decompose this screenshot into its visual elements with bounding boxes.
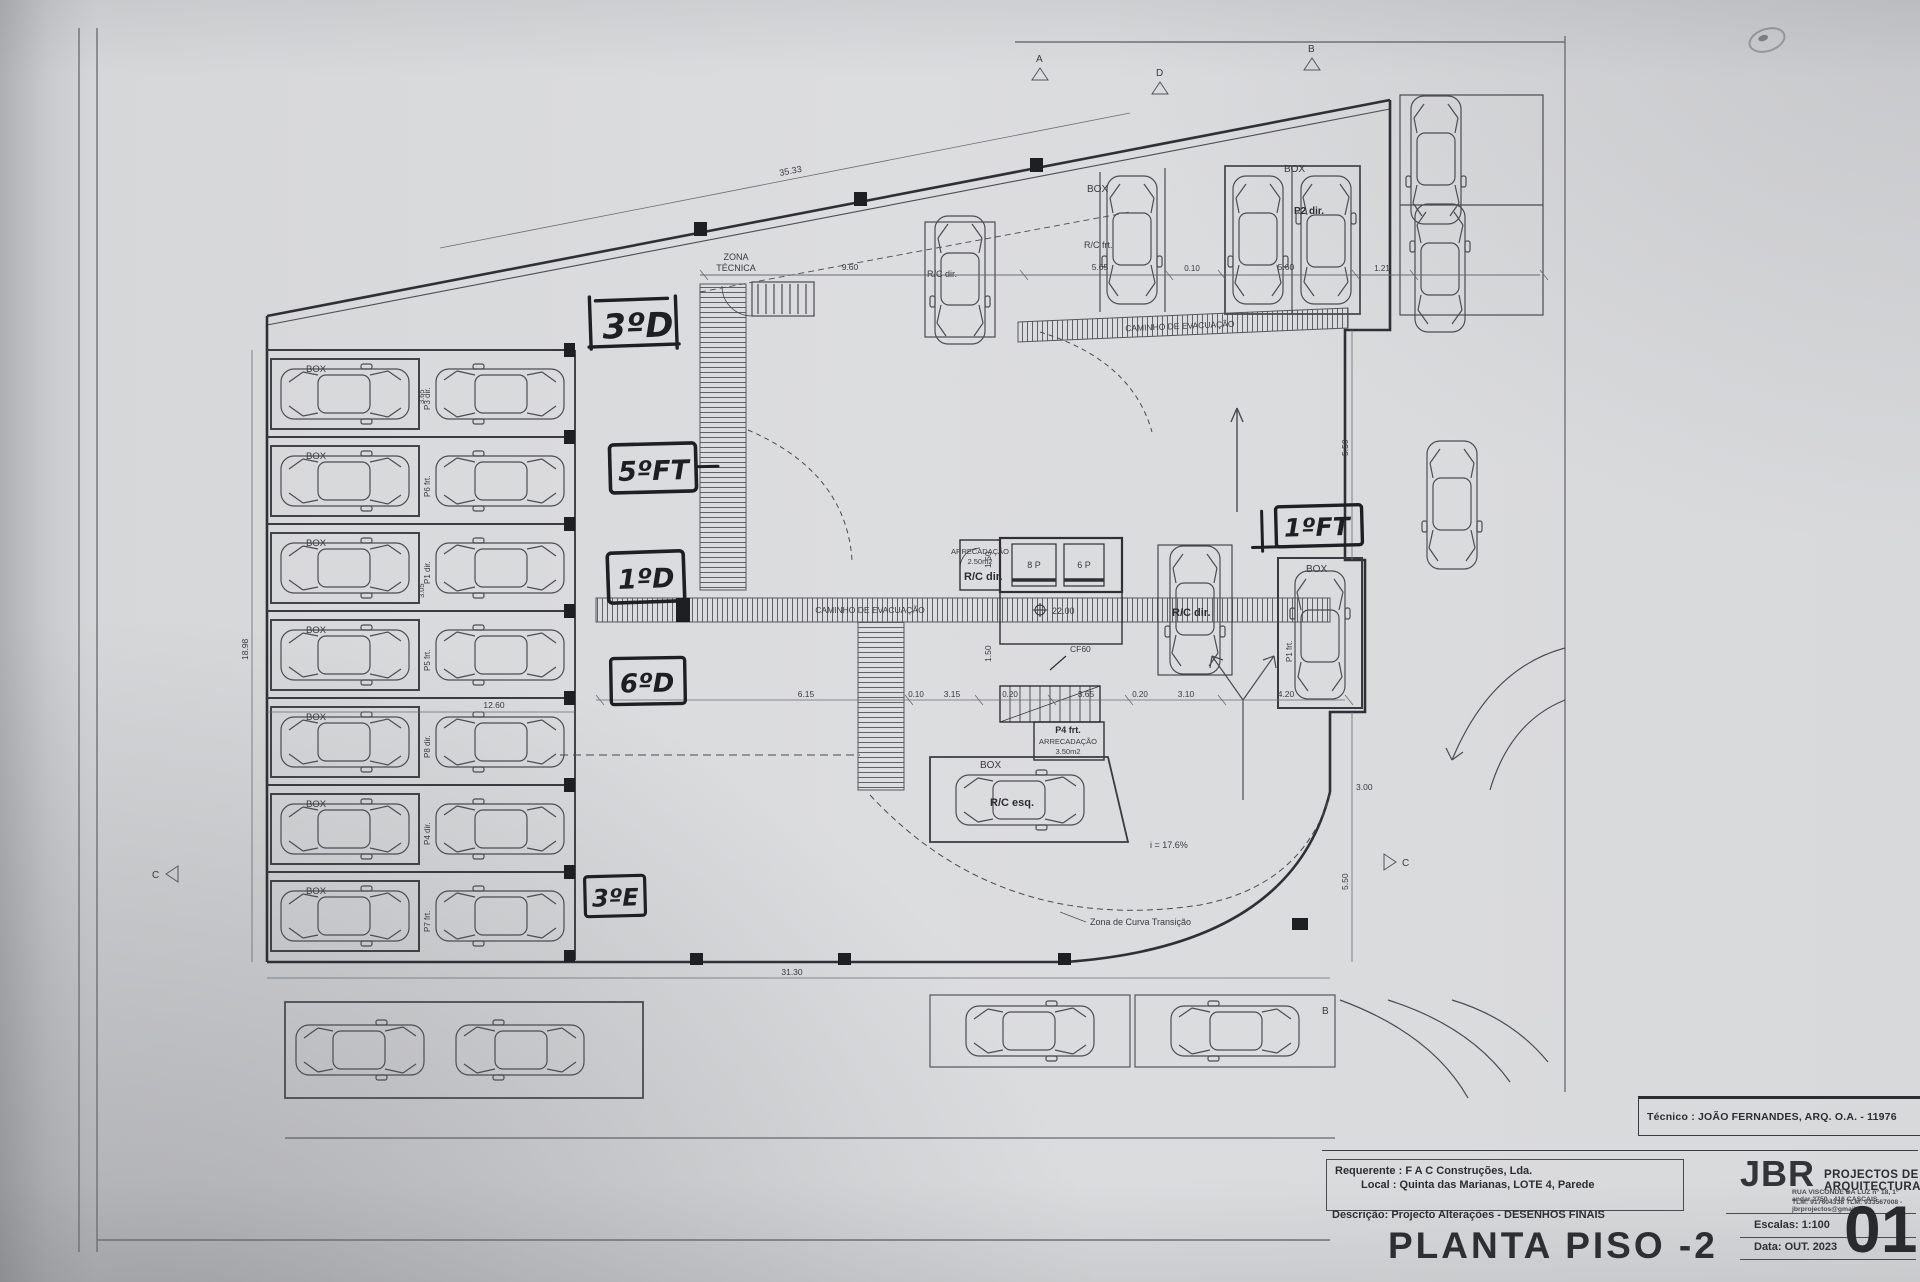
curve-zone-label: Zona de Curva Transição <box>1090 917 1191 927</box>
dim-6-15: 6.15 <box>798 689 815 699</box>
requerente-box: Requerente : F A C Construções, Lda. Loc… <box>1326 1159 1684 1211</box>
dim-0-10b: 0.10 <box>908 690 924 699</box>
storage-area-label: 3.50m2 <box>1055 747 1080 756</box>
dim-31-30: 31.30 <box>781 967 803 977</box>
dim-0-10a: 0.10 <box>1184 264 1200 273</box>
box-label: BOX <box>1284 164 1305 175</box>
arrecadacao2-label: ARRECADAÇÃO <box>951 547 1009 556</box>
level-label: 22.00 <box>1052 606 1075 616</box>
ramp-slope-label: i = 17.6% <box>1150 840 1188 850</box>
unit-rc-frt: R/C frt. <box>1084 240 1113 250</box>
dim-3-05-stall: 3.05 <box>417 583 426 598</box>
stall-label-p5: P5 frt. <box>423 650 432 671</box>
box-label: BOX <box>306 799 327 810</box>
handwritten-6d: 6ºD <box>620 669 675 700</box>
stall-label-p1: P1 dir. <box>423 561 432 584</box>
escalas-line: Escalas: 1:100 <box>1754 1219 1830 1231</box>
drawing-title: PLANTA PISO -2 <box>1388 1225 1718 1267</box>
zona-tecnica-label2: TÉCNICA <box>716 263 756 273</box>
requerente-value: F A C Construções, Lda. <box>1405 1165 1532 1177</box>
box-label: BOX <box>306 625 327 636</box>
box-label: BOX <box>306 886 327 897</box>
caminho-evacuacao-center: CAMINHO DE EVACUAÇÃO <box>815 605 925 615</box>
descricao-line: Descrição: Projecto Alterações - DESENHO… <box>1332 1209 1605 1221</box>
dim-3-65-stall: 3.65 <box>417 389 426 404</box>
unit-rc-dir-room: R/C dir. <box>964 571 1003 583</box>
section-marker-a: A <box>1036 54 1043 65</box>
ramp-hatching <box>596 284 1348 790</box>
storage-arrecadacao-label: ARRECADAÇÃO <box>1039 737 1097 746</box>
handwritten-5ft: 5ºFT <box>618 455 692 488</box>
dim-3-15: 3.15 <box>944 689 961 699</box>
box-label: BOX <box>980 760 1001 771</box>
dim-0-20a: 0.20 <box>1002 690 1018 699</box>
dim-35-33: 35.33 <box>778 164 802 178</box>
storage-p4-label: P4 frt. <box>1055 725 1081 735</box>
dim-5-65: 5.65 <box>1092 262 1109 272</box>
handwritten-3e: 3ºE <box>592 883 640 912</box>
title-block: Requerente : F A C Construções, Lda. Loc… <box>1322 1150 1918 1282</box>
dim-5-60: 5.60 <box>1278 262 1295 272</box>
escalas-label: Escalas: <box>1754 1219 1799 1231</box>
stall-label-p8: P8 dir. <box>423 735 432 758</box>
unit-rc-esq-car: R/C esq. <box>990 797 1034 809</box>
dim-12-60: 12.60 <box>483 700 505 710</box>
dim-5-50a: 5.50 <box>1340 439 1350 456</box>
dim-1-50a: 1.50 <box>983 551 993 568</box>
box-label: BOX <box>306 451 327 462</box>
door-cf60-label: CF60 <box>1070 644 1091 654</box>
section-marker-c-right: C <box>1402 858 1409 869</box>
left-parking-block <box>267 350 575 960</box>
descricao-label: Descrição: <box>1332 1209 1388 1221</box>
center-cars <box>956 546 1350 830</box>
bottom-strip <box>285 648 1565 1138</box>
stall-label-p2-dir: P2 dir. <box>1294 206 1324 217</box>
dim-4-20: 4.20 <box>1278 689 1295 699</box>
handwritten-1d: 1ºD <box>618 563 675 596</box>
box-label: BOX <box>306 712 327 723</box>
dim-1-21: 1.21 <box>1374 264 1390 273</box>
local-label: Local : <box>1361 1179 1396 1191</box>
stall-label-p4: P4 dir. <box>423 822 432 845</box>
stall-label-p1-frt: P1 frt. <box>1285 641 1294 662</box>
sheet-number: 01 <box>1844 1191 1917 1267</box>
dim-18-98: 18.98 <box>240 638 250 660</box>
data-label: Data: <box>1754 1241 1782 1253</box>
lift-b-label: 6 P <box>1077 560 1091 570</box>
box-label: BOX <box>1306 564 1327 575</box>
dim-5-50b: 5.50 <box>1340 873 1350 890</box>
descricao-value: Projecto Alterações - DESENHOS FINAIS <box>1391 1209 1605 1221</box>
tecnico-line: Técnico : JOÃO FERNANDES, ARQ. O.A. - 11… <box>1647 1111 1897 1123</box>
dim-1-50b: 1.50 <box>983 645 993 662</box>
requerente-label: Requerente : <box>1335 1165 1402 1177</box>
sheet-frame <box>79 28 1565 1252</box>
pillars <box>564 158 1308 965</box>
stall-label-p7: P7 frt. <box>423 911 432 932</box>
section-marker-b: B <box>1308 44 1315 55</box>
box-label: BOX <box>306 538 327 549</box>
section-marker-c-left: C <box>152 870 159 881</box>
section-marker-b-bottom: B <box>1322 1006 1329 1017</box>
unit-rc-dir-faint: R/C dir. <box>927 269 957 279</box>
handwritten-1ft: 1ºFT <box>1284 512 1352 543</box>
floor-plan-drawing: ZONA TÉCNICA CAMINHO DE EVACUAÇÃO CAMINH… <box>0 0 1920 1282</box>
local-value: Quinta das Marianas, LOTE 4, Parede <box>1400 1179 1595 1191</box>
bottom-cars <box>296 1001 1299 1080</box>
lift-a-label: 8 P <box>1027 560 1041 570</box>
box-label: BOX <box>306 364 327 375</box>
section-marker-d: D <box>1156 68 1163 79</box>
handwritten-3d: 3ºD <box>602 305 674 347</box>
unit-rc-dir-car: R/C dir. <box>1172 607 1211 619</box>
zona-tecnica-label: ZONA <box>723 252 748 262</box>
data-line: Data: OUT. 2023 <box>1754 1241 1837 1253</box>
data-value: OUT. 2023 <box>1785 1241 1838 1253</box>
dim-3-10: 3.10 <box>1178 689 1195 699</box>
tecnico-box: Técnico : JOÃO FERNANDES, ARQ. O.A. - 11… <box>1638 1096 1920 1136</box>
escalas-value: 1:100 <box>1802 1219 1830 1231</box>
dim-0-20b: 0.20 <box>1132 690 1148 699</box>
dim-9-60: 9.60 <box>842 262 859 272</box>
stall-label-p6: P6 frt. <box>423 476 432 497</box>
dim-3-00: 3.00 <box>1356 782 1373 792</box>
photographed-drawing-sheet: ZONA TÉCNICA CAMINHO DE EVACUAÇÃO CAMINH… <box>0 0 1920 1282</box>
dim-3-65: 3.65 <box>1078 689 1095 699</box>
box-label: BOX <box>1087 184 1108 195</box>
